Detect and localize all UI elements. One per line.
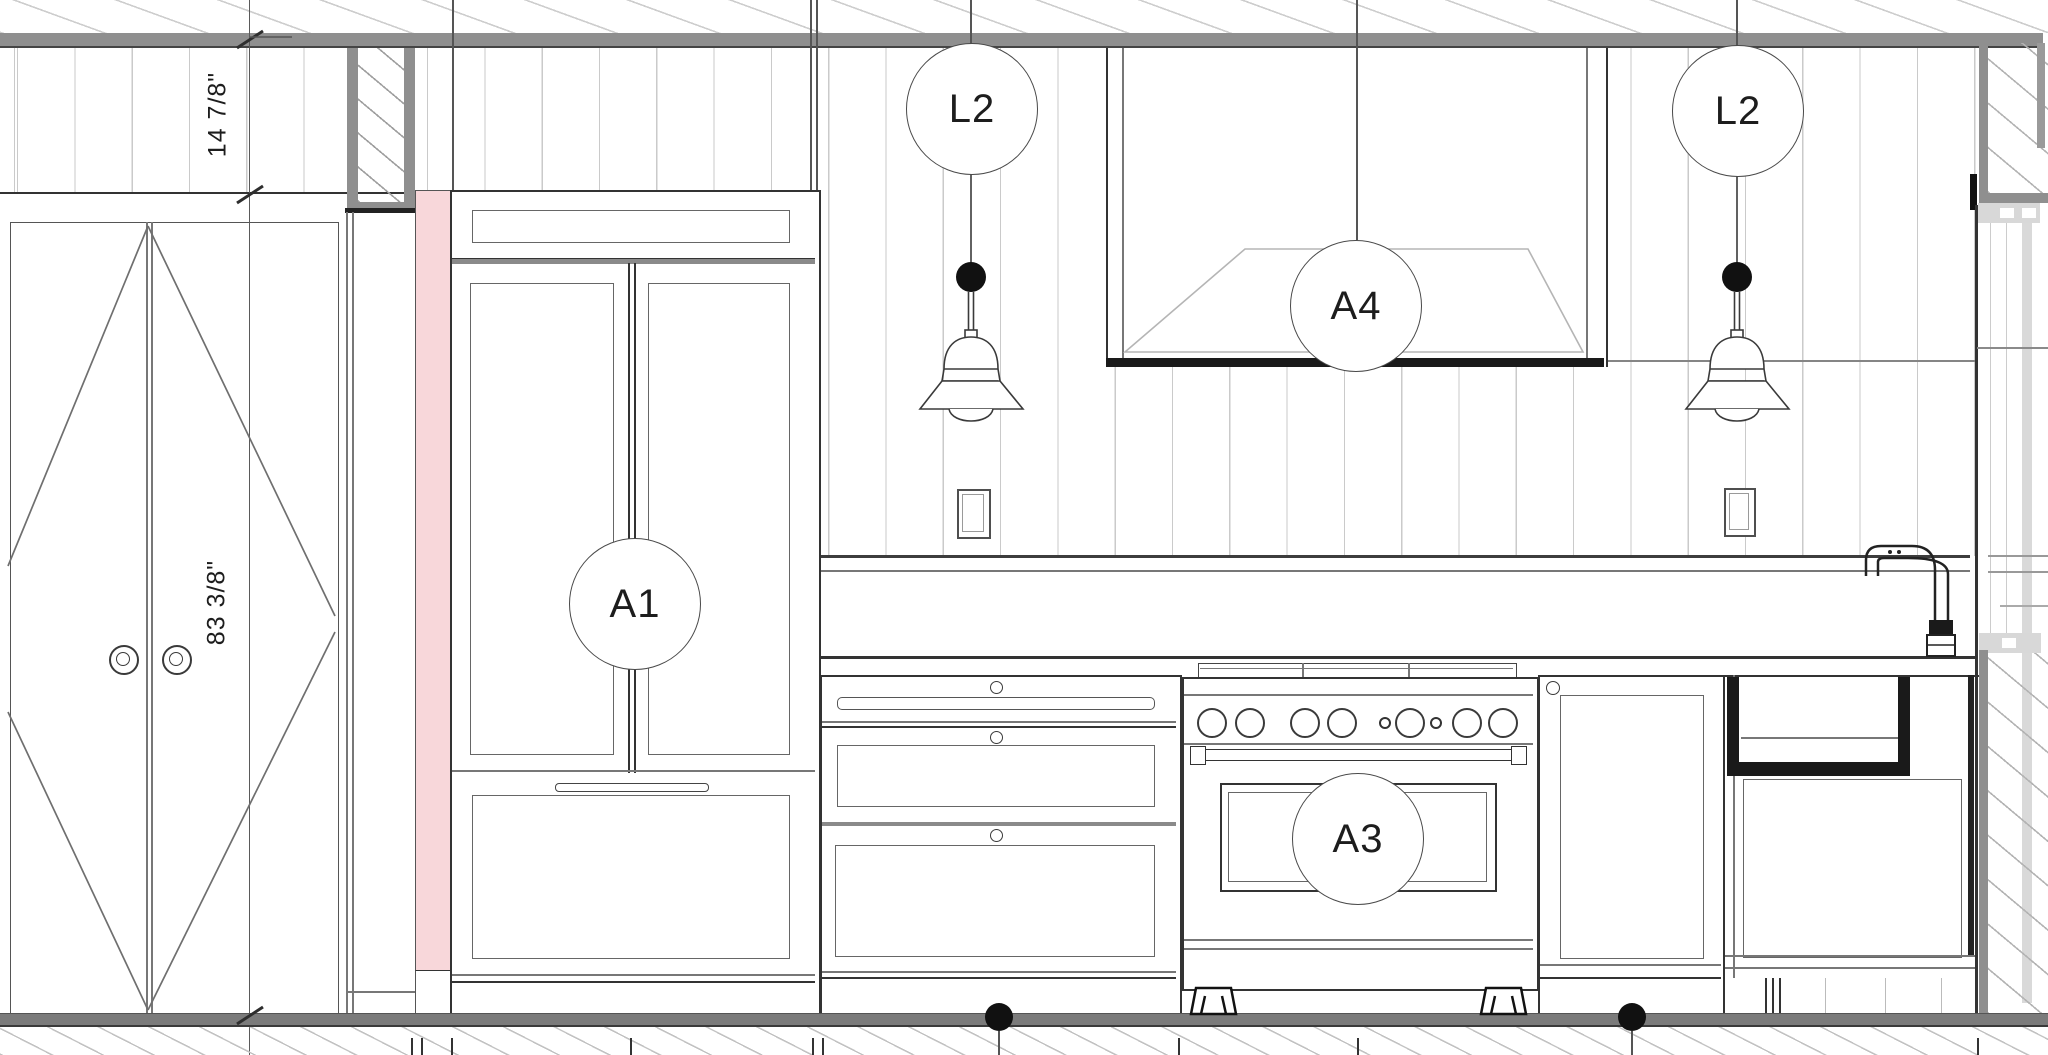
sink-toe-line-d bbox=[1825, 978, 1826, 1014]
beyond-wall-line-c bbox=[1988, 571, 2048, 573]
floor-line bbox=[0, 1013, 2048, 1027]
outlet-right-inner bbox=[1729, 493, 1749, 530]
closet-door bbox=[10, 222, 339, 1015]
range-handle-cap-right bbox=[1511, 746, 1527, 765]
door-casing-line-b bbox=[352, 212, 354, 1014]
tall-door-base-line-b bbox=[1540, 977, 1721, 979]
door-knob-right-inner bbox=[169, 652, 183, 666]
tall-door-panel bbox=[1560, 695, 1704, 959]
beyond-wall-line-a bbox=[1977, 347, 2048, 349]
range-top-line bbox=[1184, 694, 1533, 696]
tag-refrigerator-label: A1 bbox=[610, 582, 661, 627]
range-lower-line-b bbox=[1184, 948, 1533, 950]
right-wall-corner-line bbox=[1975, 205, 1978, 1014]
right-wall-bar bbox=[1988, 193, 2048, 203]
tag-pendant-right: L2 bbox=[1672, 45, 1804, 177]
range-knob-1 bbox=[1197, 708, 1227, 738]
farmhouse-sink-left-wall bbox=[1727, 677, 1739, 771]
pendant-right-leader bbox=[1736, 0, 1738, 47]
drawer2-panel bbox=[837, 745, 1155, 807]
pink-strip-toe-box bbox=[415, 970, 452, 1015]
range-hood-inner-right bbox=[1586, 48, 1588, 358]
floor-hatch bbox=[0, 1027, 2048, 1055]
farmhouse-sink-bottom bbox=[1727, 762, 1910, 776]
tag-pendant-left: L2 bbox=[906, 43, 1038, 175]
sink-base-line-a bbox=[1725, 955, 1975, 957]
sink-inner-line bbox=[1741, 737, 1898, 739]
below-floor-tick-g bbox=[1178, 1038, 1180, 1055]
drawer1-pull-slot bbox=[837, 697, 1155, 710]
beyond-wall-line-d bbox=[2000, 605, 2048, 607]
sink-toe-line-b bbox=[1772, 978, 1774, 1014]
floor-dot-left bbox=[985, 1003, 1013, 1031]
sink-base-line-b bbox=[1725, 967, 1975, 969]
right-wall-post-lower bbox=[1979, 650, 1988, 1014]
range-knobband-line bbox=[1184, 743, 1533, 745]
drawer3-knob bbox=[990, 829, 1003, 842]
ceiling-hatch bbox=[0, 0, 2048, 33]
dimension-text-upper: 14 7/8" bbox=[204, 55, 233, 175]
dimension-line bbox=[249, 0, 250, 1055]
refrigerator-door-panel-right bbox=[648, 283, 790, 755]
below-floor-tick-i bbox=[1977, 1038, 1979, 1055]
farmhouse-sink-right-wall bbox=[1898, 677, 1910, 771]
drawer1-rail-a bbox=[822, 721, 1176, 723]
range-grate-div-a bbox=[1302, 663, 1304, 677]
right-wall-hatch-lower bbox=[1988, 653, 2048, 1014]
right-wall-thin-b bbox=[2006, 223, 2007, 648]
drawer1-knob bbox=[990, 681, 1003, 694]
refrigerator-door-bottom-line bbox=[452, 770, 815, 772]
range-knob-3 bbox=[1290, 708, 1320, 738]
below-floor-tick-e bbox=[812, 1038, 814, 1055]
sink-toe-line-c bbox=[1779, 978, 1781, 1014]
floor-dot-right bbox=[1618, 1003, 1646, 1031]
wall-bracket-upper-notch-b bbox=[2022, 208, 2036, 218]
hood-tag-leader bbox=[1356, 0, 1358, 240]
tag-pendant-left-label: L2 bbox=[949, 87, 996, 132]
wall-bracket-lower-notch bbox=[2002, 638, 2016, 648]
below-floor-tick-a bbox=[411, 1038, 413, 1055]
range-handle-cap-left bbox=[1190, 746, 1206, 765]
tall-door-base-line-a bbox=[1540, 964, 1721, 966]
range-knob-7 bbox=[1488, 708, 1518, 738]
refrigerator-base-line-b bbox=[452, 981, 815, 983]
below-floor-tick-f bbox=[822, 1038, 824, 1055]
range-dot-1 bbox=[1379, 717, 1391, 729]
hood-datum-line bbox=[1604, 360, 1977, 362]
tag-pendant-right-label: L2 bbox=[1715, 89, 1762, 134]
drawer2-knob bbox=[990, 731, 1003, 744]
shelf-bottom-line bbox=[818, 570, 1970, 572]
pink-highlight-strip bbox=[415, 190, 452, 972]
dimension-text-upper-value: 14 7/8" bbox=[204, 72, 232, 157]
range-knob-2 bbox=[1235, 708, 1265, 738]
refrigerator-freezer-handle bbox=[555, 783, 709, 792]
range-grate-div-b bbox=[1408, 663, 1410, 677]
tall-door-knob bbox=[1546, 681, 1560, 695]
below-floor-tick-c bbox=[451, 1038, 453, 1055]
drawer2-rail bbox=[822, 822, 1176, 826]
range-knob-4 bbox=[1327, 708, 1357, 738]
drawer-base-line-a bbox=[822, 971, 1176, 973]
casing-base-line bbox=[346, 991, 417, 993]
refrigerator-base-line-a bbox=[452, 974, 815, 976]
tag-range-label: A3 bbox=[1333, 817, 1384, 862]
below-floor-tick-h bbox=[1357, 1038, 1359, 1055]
below-floor-tick-d bbox=[630, 1038, 632, 1055]
door-knob-left-inner bbox=[116, 652, 130, 666]
grid-line-fridge-left bbox=[452, 0, 454, 190]
range-handle bbox=[1196, 749, 1521, 761]
sink-toe-line-e bbox=[1885, 978, 1886, 1014]
outlet-left-inner bbox=[962, 494, 984, 532]
tag-range: A3 bbox=[1292, 773, 1424, 905]
wall-jamb-hatch bbox=[358, 48, 404, 202]
refrigerator-top-rail-panel bbox=[472, 210, 790, 243]
grid-line-fridge-right-a bbox=[810, 0, 812, 190]
dimension-text-lower: 83 3/8" bbox=[203, 543, 232, 663]
range-hood-inner-left bbox=[1122, 48, 1124, 358]
door-stile-line-b bbox=[151, 222, 153, 1014]
refrigerator-door-panel-left bbox=[470, 283, 614, 755]
sink-toe-line-f bbox=[1941, 978, 1942, 1014]
range-dot-2 bbox=[1430, 717, 1442, 729]
drawer-base-line-b bbox=[822, 977, 1176, 979]
tag-refrigerator: A1 bbox=[569, 538, 701, 670]
floor-dot-left-leader bbox=[998, 1031, 1000, 1055]
wall-jamb-right bbox=[404, 48, 415, 212]
right-wall-edge-strip bbox=[2037, 43, 2045, 148]
door-casing-line-a bbox=[346, 212, 348, 1014]
pendant-left-leader bbox=[970, 0, 972, 45]
floor-dot-right-leader bbox=[1631, 1031, 1633, 1055]
sink-toe-line-a bbox=[1765, 978, 1767, 1014]
drawer1-rail-b bbox=[822, 726, 1176, 728]
sink-door-panel bbox=[1743, 779, 1962, 958]
drawer3-panel bbox=[835, 845, 1155, 957]
elevation-drawing-sheet: L2 L2 A4 A1 A3 14 7/8" 83 3/8" bbox=[0, 0, 2048, 1055]
wall-jamb-left bbox=[347, 48, 358, 212]
door-stile-line-a bbox=[146, 222, 148, 1014]
dimension-text-lower-value: 83 3/8" bbox=[203, 560, 231, 645]
sink-cabinet-right-edge bbox=[1968, 675, 1974, 957]
wall-bracket-upper-notch-a bbox=[2000, 208, 2014, 218]
range-knob-5 bbox=[1395, 708, 1425, 738]
range-lower-line-a bbox=[1184, 939, 1533, 941]
right-wall-thin-a bbox=[1990, 223, 1991, 648]
refrigerator-freezer-panel bbox=[472, 795, 790, 959]
refrigerator-mullion-b bbox=[634, 263, 636, 773]
beyond-wall-line-b bbox=[1988, 555, 2048, 557]
wall-shiplap-left bbox=[0, 48, 347, 193]
refrigerator-mullion-a bbox=[628, 263, 630, 773]
shelf-top-line bbox=[818, 555, 1970, 558]
wall-jamb-sill-shadow bbox=[345, 208, 417, 213]
below-floor-tick-b bbox=[421, 1038, 423, 1055]
tag-hood-label: A4 bbox=[1331, 284, 1382, 329]
range-grate-line bbox=[1200, 668, 1513, 669]
tag-hood: A4 bbox=[1290, 240, 1422, 372]
right-wall-post-upper bbox=[1979, 43, 1988, 203]
range-feet bbox=[1191, 988, 1526, 1014]
grid-line-fridge-right-b bbox=[816, 0, 818, 190]
range-knob-6 bbox=[1452, 708, 1482, 738]
